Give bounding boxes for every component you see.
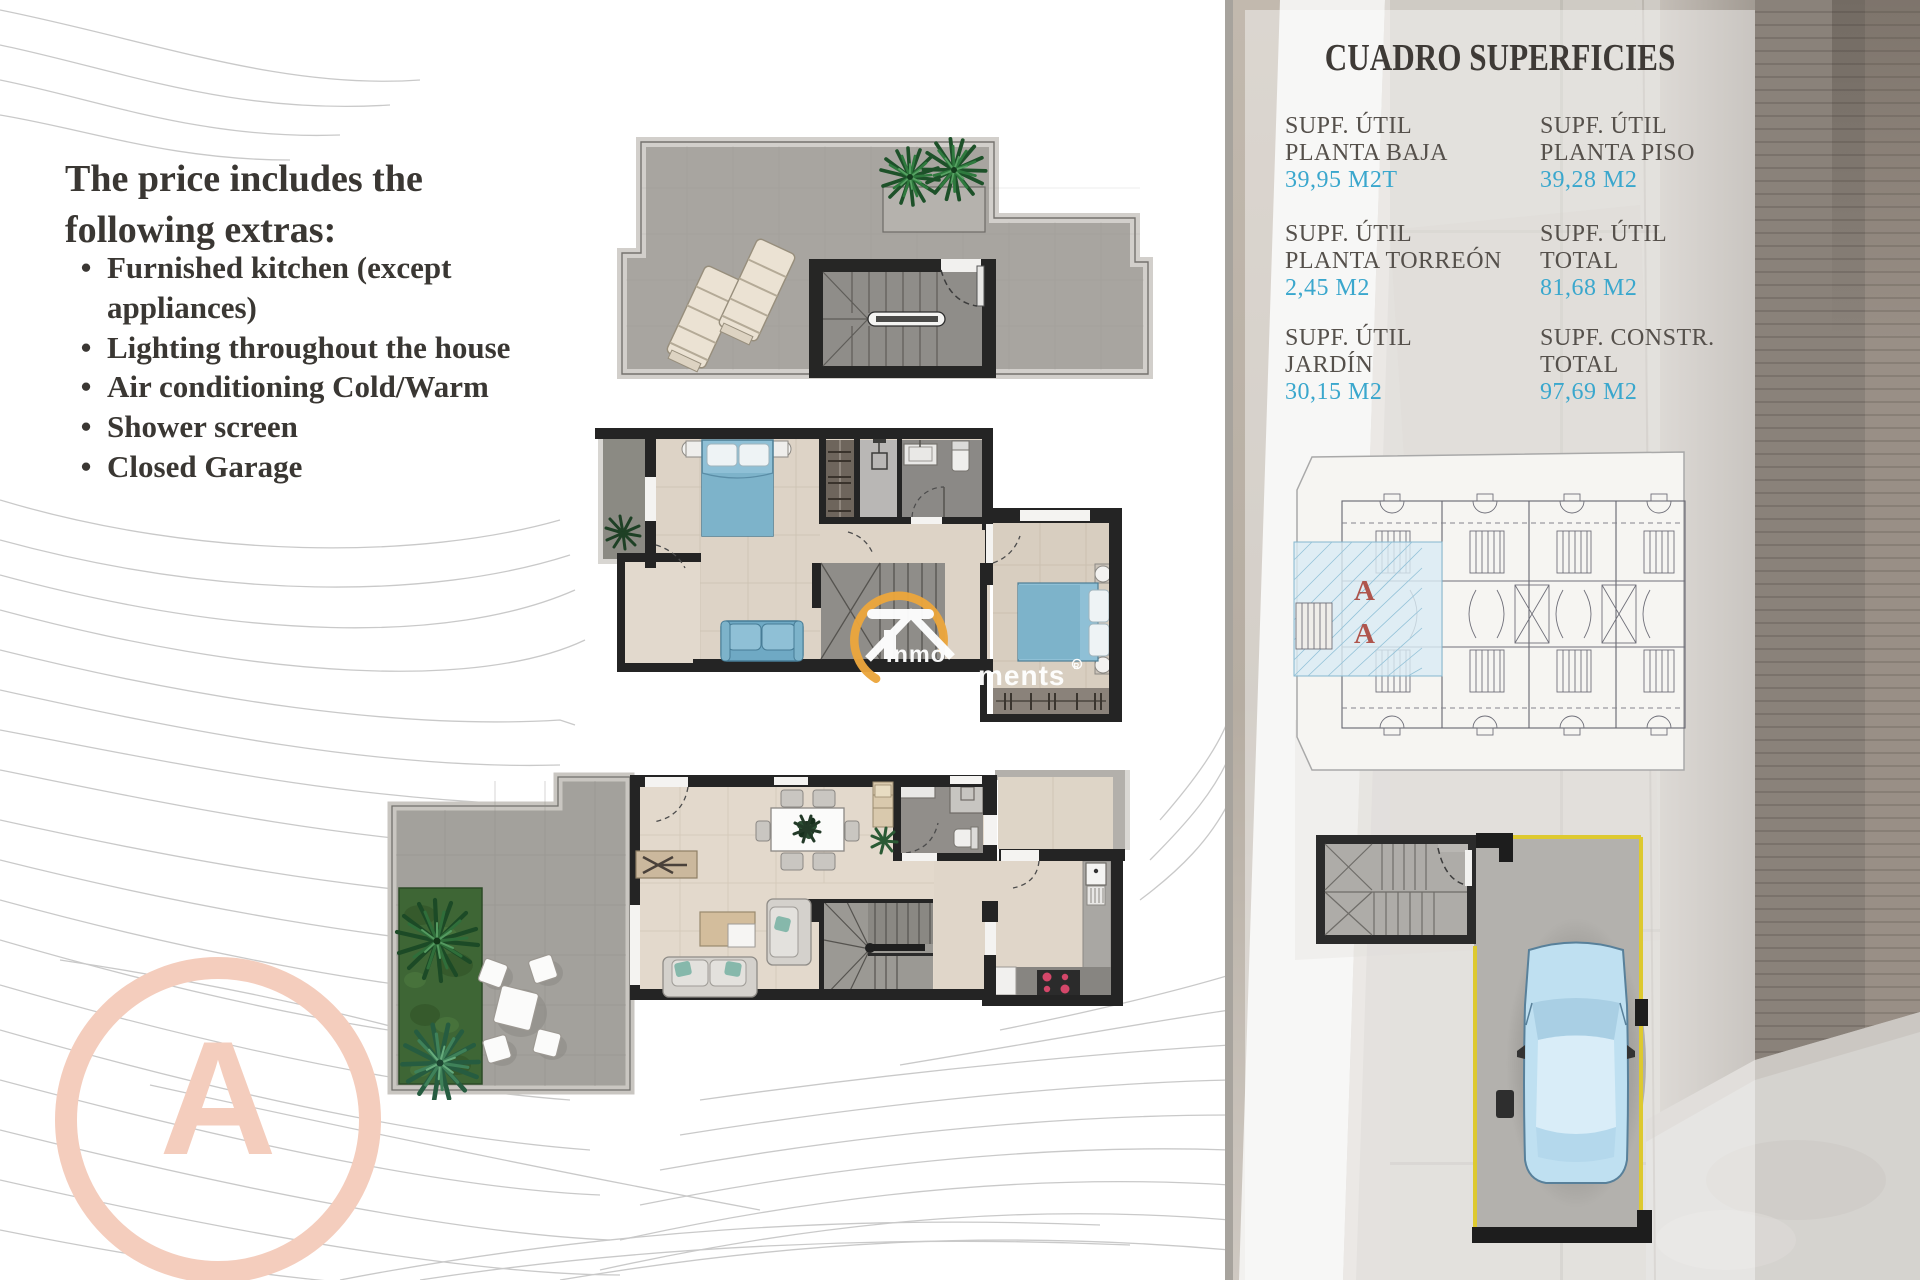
svg-text:Inmo: Inmo [886, 641, 946, 667]
svg-text:ments: ments [978, 660, 1065, 691]
svg-text:A: A [1354, 618, 1375, 650]
svg-text:R: R [1074, 662, 1080, 671]
svg-text:A: A [1354, 575, 1375, 607]
svg-text:A: A [160, 1008, 277, 1189]
